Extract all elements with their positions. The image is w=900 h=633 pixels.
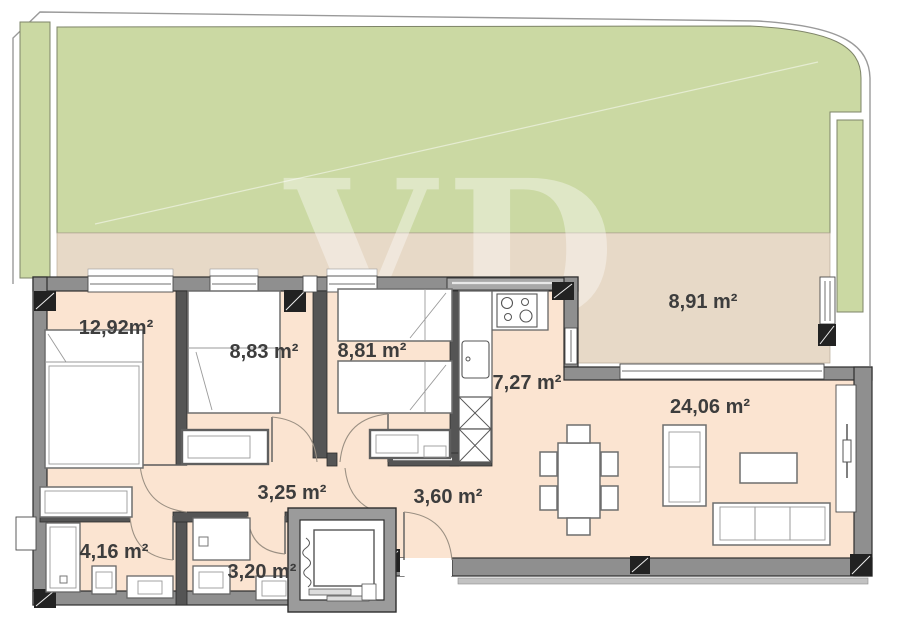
living-room-area-label: 24,06 m² xyxy=(670,396,750,418)
elevator-cabin xyxy=(314,530,374,586)
dining-chair xyxy=(567,425,590,443)
double-bed xyxy=(45,330,143,468)
bedroom1-furniture xyxy=(40,330,143,517)
shower xyxy=(46,523,80,592)
dresser xyxy=(40,487,132,517)
wardrobe xyxy=(182,430,268,464)
bedroom3-area-label: 8,81 m² xyxy=(338,340,407,362)
south-wall xyxy=(452,558,872,576)
dining-chair xyxy=(601,486,618,510)
east-wall xyxy=(854,367,872,576)
small-window xyxy=(303,276,317,292)
bathroom2-area-label: 3,20 m² xyxy=(228,561,297,583)
window-handle xyxy=(843,440,851,462)
kitchen-area-label: 7,27 m² xyxy=(493,372,562,394)
wardrobe xyxy=(370,430,450,458)
armchair xyxy=(663,425,706,506)
garden-right-strip xyxy=(837,120,863,312)
dining-chair xyxy=(540,486,557,510)
bedroom2-furniture xyxy=(182,291,280,464)
bathroom1-vent-window xyxy=(16,517,36,550)
floor-plan-canvas: VD xyxy=(0,0,900,633)
dining-chair xyxy=(601,452,618,476)
washbasin xyxy=(127,576,173,598)
single-bed-2 xyxy=(338,361,452,413)
bedroom2-area-label: 8,83 m² xyxy=(230,341,299,363)
entrance-hall-area-label: 3,60 m² xyxy=(414,486,483,508)
partition-baths xyxy=(176,512,187,605)
dining-chair xyxy=(540,452,557,476)
terrace-side-window xyxy=(820,277,835,324)
hallway-area-label: 3,25 m² xyxy=(258,482,327,504)
dining-table xyxy=(558,443,600,518)
terrace-area-label: 8,91 m² xyxy=(669,291,738,313)
coffee-table xyxy=(740,453,797,483)
floor-plan-page: VD xyxy=(0,0,900,633)
partition-br2-br3 xyxy=(313,291,327,458)
garden-left-strip xyxy=(20,22,50,278)
south-edge-band xyxy=(458,578,868,584)
bathroom1-area-label: 4,16 m² xyxy=(80,541,149,563)
shower xyxy=(193,518,250,560)
bedroom1-area-label: 12,92m² xyxy=(79,317,154,339)
elevator-door-1 xyxy=(309,589,351,595)
single-bed-1 xyxy=(338,289,452,341)
dining-chair xyxy=(567,518,590,535)
sofa xyxy=(713,503,830,545)
entrance-opening xyxy=(400,558,452,576)
elevator xyxy=(288,508,396,612)
